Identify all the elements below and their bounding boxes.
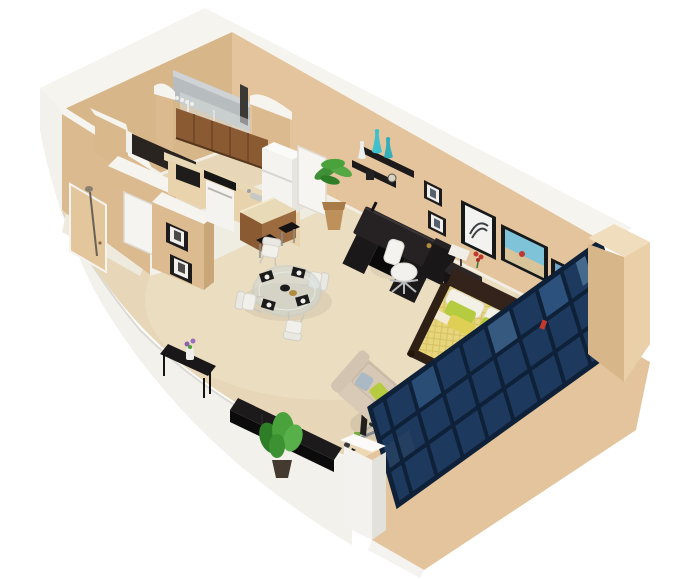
towel-hook [185, 100, 189, 104]
floor-lamp-head [85, 186, 93, 192]
door-knob [98, 241, 101, 244]
pantry-door [298, 146, 326, 216]
towel-hook [180, 98, 184, 102]
towel-hook [175, 96, 179, 100]
flower-vase [186, 348, 194, 360]
shelf-clock [388, 174, 396, 182]
towel-hook [190, 102, 194, 106]
red-flowers [474, 252, 479, 257]
apartment-render [0, 0, 695, 579]
floor-plan-image [0, 0, 695, 579]
faucet [247, 189, 251, 193]
shelf-frame [366, 170, 374, 180]
